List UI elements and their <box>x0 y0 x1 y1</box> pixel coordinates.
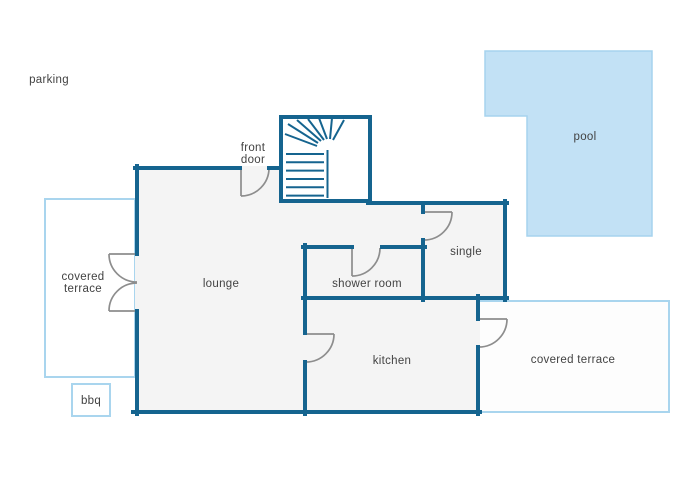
covered-terrace-left-label-line2: terrace <box>64 283 102 295</box>
pool-area <box>485 51 652 236</box>
staircase-box <box>281 117 370 201</box>
covered-terrace-left-label-line1: covered <box>61 271 104 283</box>
shower-room-label: shower room <box>332 278 402 290</box>
covered-terrace-right-label: covered terrace <box>531 354 615 366</box>
parking-label: parking <box>29 74 69 86</box>
floor-plan-page: parking front door covered terrace loung… <box>0 0 700 500</box>
front-door-label-line2: door <box>241 154 265 166</box>
floor-plan-svg: parking front door covered terrace loung… <box>0 0 700 500</box>
kitchen-label: kitchen <box>373 355 412 367</box>
pool-label: pool <box>574 131 597 143</box>
staircase <box>281 117 370 201</box>
single-label: single <box>450 246 482 258</box>
front-door-label-line1: front <box>241 142 266 154</box>
lounge-label: lounge <box>203 278 239 290</box>
bbq-label: bbq <box>81 395 101 407</box>
